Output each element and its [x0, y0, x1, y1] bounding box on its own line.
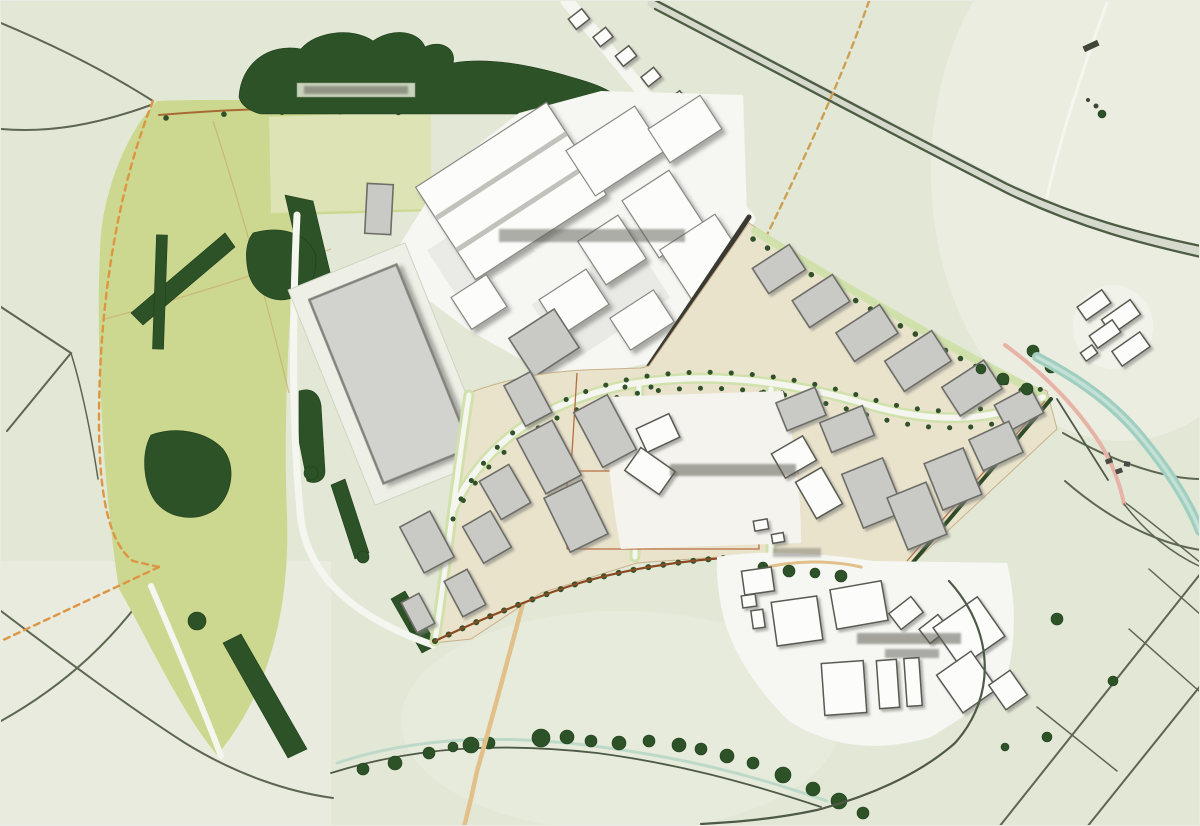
industrial-estate-label [499, 229, 685, 242]
tree-clump [1042, 732, 1052, 742]
mid-site-small-label [773, 548, 821, 557]
small-gray-building [365, 183, 394, 234]
woodland-label-text [304, 86, 408, 94]
tree-clump [1108, 676, 1118, 686]
mid-site-label [670, 464, 796, 476]
southeast-estate-label-line2 [885, 649, 939, 658]
site-masterplan-map [0, 0, 1200, 826]
tree-clump [1051, 613, 1063, 625]
southeast-estate-label-line1 [857, 633, 961, 644]
tree-clump [1001, 743, 1009, 751]
